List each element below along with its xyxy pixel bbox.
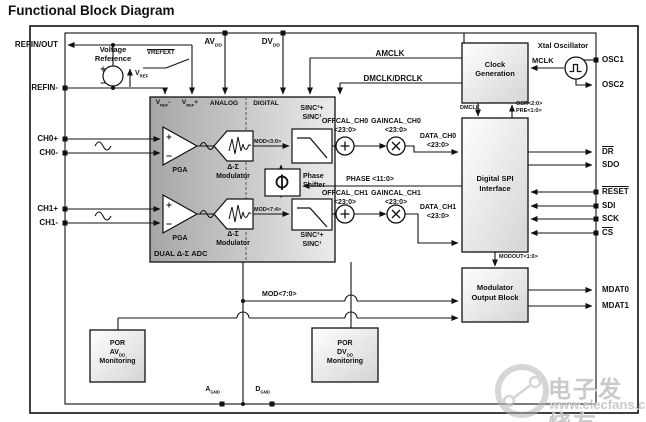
pin-label-ch0-plus: CH0+ bbox=[0, 134, 58, 143]
data-ch1-label: DATA_CH1 bbox=[408, 204, 468, 212]
mod70-bus-label: MOD<7:0> bbox=[262, 291, 297, 299]
adc-header-vref-plus: VREF+ bbox=[177, 99, 203, 108]
pin-label-mdat1: MDAT1 bbox=[602, 301, 629, 310]
dual-adc-label: DUAL Δ-Σ ADC bbox=[154, 250, 208, 259]
osr-label: OSR<2:0> bbox=[516, 101, 542, 107]
voltage-reference-label-2: Reference bbox=[84, 55, 142, 64]
spi-label-1: Digital SPI bbox=[462, 175, 528, 184]
phase-bus-label: PHASE <11:0> bbox=[325, 176, 415, 184]
por-av-label-1: POR bbox=[90, 340, 145, 348]
phase-shifter-label-2: Shifter bbox=[303, 182, 325, 190]
dmclk-drclk-label: DMCLK/DRCLK bbox=[345, 74, 441, 83]
pin-label-dr: DR bbox=[602, 147, 614, 156]
pin-label-dgnd: DGND bbox=[240, 386, 270, 394]
pga-ch0-label: PGA bbox=[162, 167, 198, 175]
por-av-label-2: AVDD bbox=[90, 349, 145, 357]
adc-header-analog: ANALOG bbox=[206, 100, 242, 107]
watermark-cn-text: 电子发烧友 bbox=[548, 370, 646, 422]
mod30-bus-label: MOD<3:0> bbox=[254, 139, 281, 145]
por-dv-label-3: Monitoring bbox=[312, 358, 378, 366]
pin-label-sdi: SDI bbox=[602, 201, 615, 210]
data-ch0-label: DATA_CH0 bbox=[410, 133, 466, 141]
watermark-url-text: www.elecfans.com bbox=[549, 397, 646, 412]
phase-shifter-block bbox=[265, 169, 300, 196]
spi-label-2: Interface bbox=[462, 185, 528, 194]
xtal-oscillator-icon bbox=[565, 57, 587, 79]
modout-bus-label: MODOUT<1:0> bbox=[499, 254, 538, 260]
modulator-output-label-1: Modulator bbox=[462, 284, 528, 293]
sinc-ch1-label-2: SINC¹ bbox=[292, 241, 332, 249]
pin-label-ch1-minus: CH1- bbox=[0, 218, 58, 227]
xtal-oscillator-label: Xtal Oscillator bbox=[524, 42, 602, 51]
pin-label-refin-minus: REFIN- bbox=[0, 83, 58, 92]
pin-label-refin-out: REFIN/OUT bbox=[0, 40, 58, 49]
mclk-label: MCLK bbox=[532, 57, 554, 66]
por-dv-label-1: POR bbox=[312, 340, 378, 348]
pin-label-dvdd: DVDD bbox=[248, 37, 280, 49]
watermark-logo bbox=[498, 367, 546, 415]
pin-label-ch1-plus: CH1+ bbox=[0, 204, 58, 213]
pga-ch1-label: PGA bbox=[162, 235, 198, 243]
pin-label-sdo: SDO bbox=[602, 160, 619, 169]
pin-label-osc1: OSC1 bbox=[602, 55, 624, 64]
functional-block-diagram: Functional Block Diagram REFIN/OUT REFIN… bbox=[0, 0, 646, 422]
pin-label-ch0-minus: CH0- bbox=[0, 148, 58, 157]
modulator-output-label-2: Output Block bbox=[462, 294, 528, 303]
data-ch1-bits: <23:0> bbox=[408, 213, 468, 221]
modulator-ch0-label-1: Δ-Σ bbox=[204, 164, 262, 172]
page-title: Functional Block Diagram bbox=[8, 3, 175, 19]
modulator-ch1-label-2: Modulator bbox=[204, 240, 262, 248]
pre-label: PRE<1:0> bbox=[516, 108, 542, 114]
modulator-ch1-label-1: Δ-Σ bbox=[204, 231, 262, 239]
mod74-bus-label: MOD<7:4> bbox=[254, 207, 281, 213]
sinc-ch0-label-1: SINC³+ bbox=[292, 105, 332, 113]
pin-label-reset: RESET bbox=[602, 187, 629, 196]
pin-label-avdd: AVDD bbox=[190, 37, 222, 49]
vrefext-switch-label: VREFEXT bbox=[147, 50, 175, 57]
dmclk-internal-label: DMCLK bbox=[460, 105, 480, 111]
modulator-ch0-label-2: Modulator bbox=[204, 173, 262, 181]
pin-label-cs: CS bbox=[602, 228, 613, 237]
voltage-reference-source bbox=[101, 66, 124, 86]
por-dv-label-2: DVDD bbox=[312, 349, 378, 357]
pin-label-agnd: AGND bbox=[190, 386, 220, 394]
gaincal-ch1-label: GAINCAL_CH1 bbox=[359, 190, 433, 198]
clock-generation-label-2: Generation bbox=[462, 70, 528, 79]
phase-shifter-label-1: Phase bbox=[303, 173, 324, 181]
pin-label-sck: SCK bbox=[602, 214, 619, 223]
amclk-label: AMCLK bbox=[350, 49, 430, 58]
adc-header-vref-minus: VREF- bbox=[150, 99, 176, 108]
gaincal-ch0-label: GAINCAL_CH0 bbox=[359, 118, 433, 126]
vref-label: VREF bbox=[135, 70, 148, 78]
pin-label-mdat0: MDAT0 bbox=[602, 285, 629, 294]
sinc-ch1-label-1: SINC³+ bbox=[292, 232, 332, 240]
data-ch0-bits: <23:0> bbox=[410, 142, 466, 150]
adc-header-digital: DIGITAL bbox=[248, 100, 284, 107]
pin-label-osc2: OSC2 bbox=[602, 80, 624, 89]
por-av-label-3: Monitoring bbox=[90, 358, 145, 366]
